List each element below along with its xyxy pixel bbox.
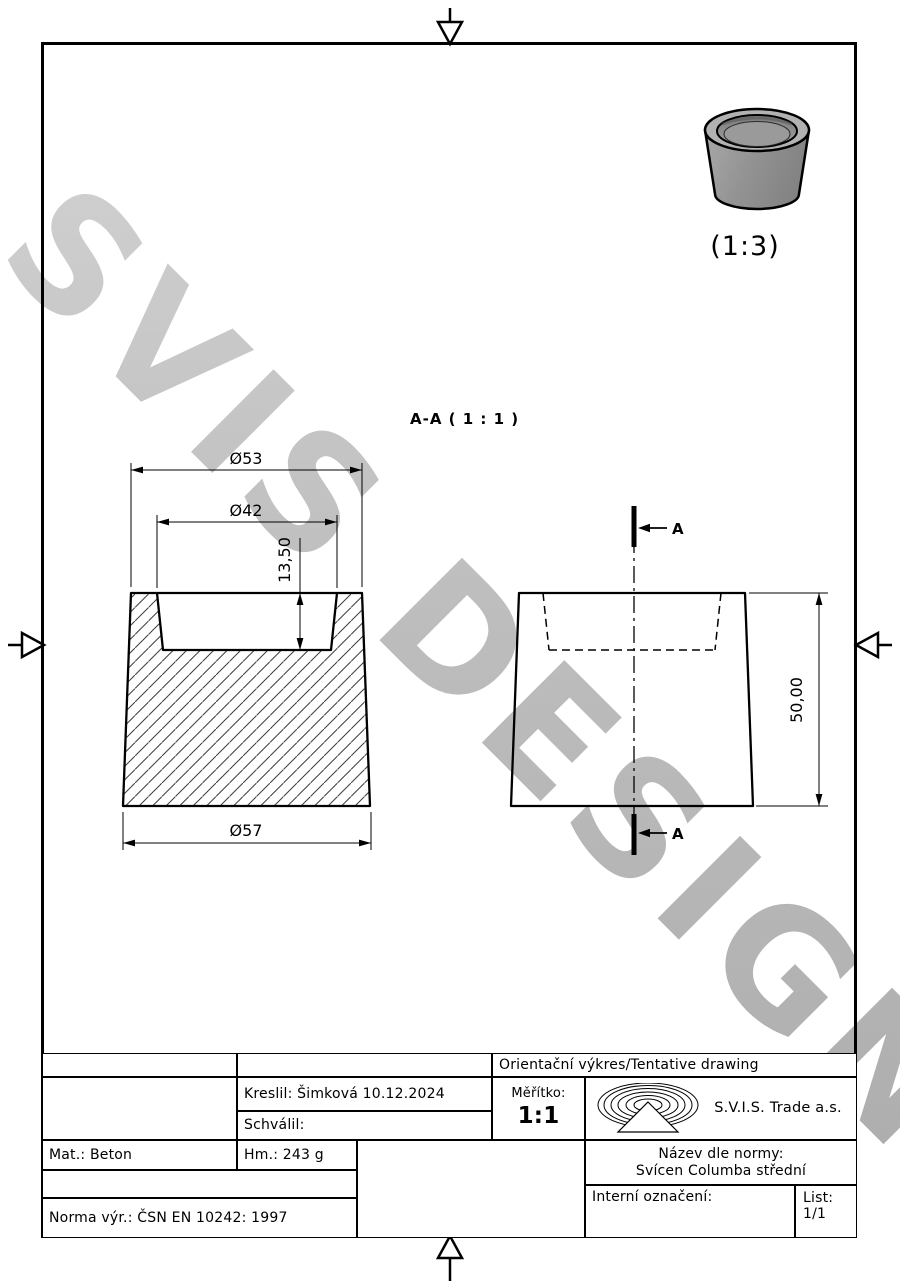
tb-sheet-value: 1/1 [803,1206,826,1222]
company-logo [596,1083,700,1135]
tb-norm: Norma výr.: ČSN EN 10242: 1997 [42,1198,357,1238]
tb-material: Mat.: Beton [42,1140,237,1170]
tb-empty-5 [357,1140,585,1238]
register-mark-top [438,8,462,44]
tb-drawing-type: Orientační výkres/Tentative drawing [492,1053,857,1077]
tb-company-cell: S.V.I.S. Trade a.s. [585,1077,857,1140]
tb-internal: Interní označení: [585,1185,795,1238]
tb-scale-label: Měřítko: [511,1087,565,1102]
tb-empty-3 [42,1077,237,1140]
tb-empty-2 [237,1053,492,1077]
register-mark-left [8,633,44,657]
tb-scale: Měřítko: 1:1 [492,1077,585,1140]
drawing-sheet: SVIS DESIGN [0,0,900,1288]
tb-company-name: S.V.I.S. Trade a.s. [700,1100,856,1117]
tb-scale-value: 1:1 [518,1103,560,1129]
tb-approved-by: Schválil: [237,1111,492,1140]
tb-name-cell: Název dle normy: Svícen Columba střední [585,1140,857,1185]
tb-sheet-label: List: [803,1190,833,1206]
tb-name-value: Svícen Columba střední [636,1163,806,1179]
tb-empty-1 [42,1053,237,1077]
tb-drawn-by: Kreslil: Šimková 10.12.2024 [237,1077,492,1111]
title-block: Orientační výkres/Tentative drawing Kres… [42,1053,857,1238]
tb-sheet-cell: List: 1/1 [795,1185,857,1238]
tb-name-label: Název dle normy: [658,1146,783,1162]
tb-weight: Hm.: 243 g [237,1140,357,1170]
tb-empty-4 [42,1170,357,1198]
register-mark-bottom [438,1236,462,1281]
register-mark-right [856,633,892,657]
